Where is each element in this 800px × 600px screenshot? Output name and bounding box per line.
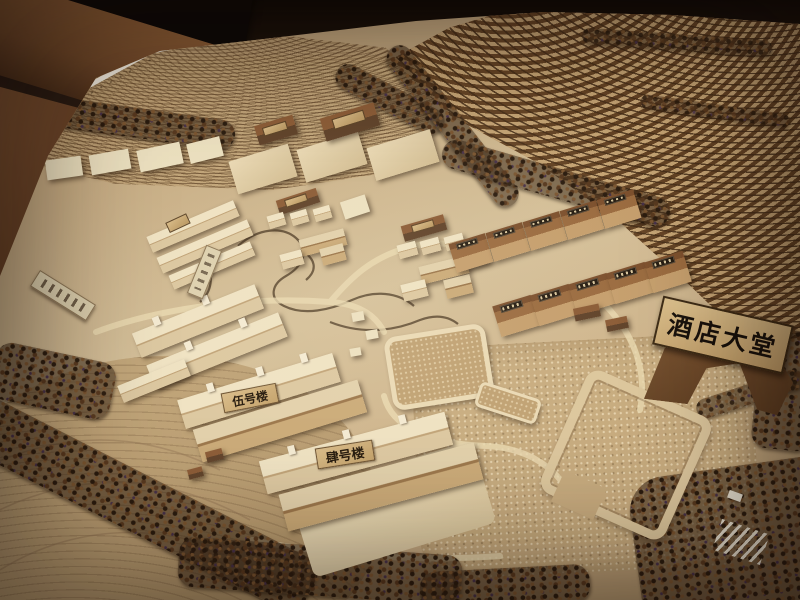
small-name-plaque — [332, 110, 367, 130]
village-house — [400, 279, 428, 302]
small-name-plaque — [410, 219, 435, 233]
small-name-plaque — [284, 193, 308, 208]
chimney — [183, 340, 193, 351]
roof-name-plaque — [492, 226, 515, 239]
village-house — [267, 212, 287, 229]
small-cottage — [351, 311, 364, 322]
cream-building — [45, 156, 83, 181]
village-house — [279, 249, 304, 269]
plaque-text-marks — [458, 240, 476, 248]
village-house — [313, 205, 333, 222]
chimney — [238, 317, 248, 328]
roof-name-plaque — [614, 266, 638, 280]
plaque-text-marks — [606, 196, 624, 204]
fallen-sign-plaque — [30, 270, 96, 321]
roof-name-plaque — [538, 288, 562, 302]
plaque-text-marks — [495, 229, 513, 237]
village-house — [290, 209, 310, 226]
architectural-model-photo: 伍号楼 肆号楼 — [0, 0, 800, 600]
plaque-text-marks — [40, 279, 86, 312]
townhouse — [644, 251, 692, 293]
chimney — [255, 366, 264, 377]
small-name-plaque — [262, 121, 289, 137]
chimney — [151, 315, 161, 326]
plaque-text-marks — [569, 207, 587, 215]
plaque-text-marks — [578, 280, 597, 288]
roof-name-plaque — [529, 215, 552, 228]
low-dark-block — [605, 316, 629, 332]
small-cottage — [349, 347, 361, 357]
village-house — [401, 214, 448, 242]
roof-name-plaque — [566, 204, 589, 217]
plaque-text-marks — [540, 291, 559, 299]
plaque-text-marks — [502, 302, 521, 310]
village-house — [397, 241, 419, 259]
roof-name-plaque — [500, 299, 524, 313]
plaque-text-marks — [532, 218, 550, 226]
roof-name-plaque — [652, 255, 676, 269]
chimney — [299, 353, 308, 364]
small-name-plaque — [165, 214, 190, 233]
chimney — [398, 414, 407, 425]
village-house — [340, 194, 370, 219]
model-base-terrain: 伍号楼 肆号楼 — [0, 0, 800, 600]
plaque-text-marks — [654, 258, 673, 266]
village-house — [420, 237, 442, 255]
roof-name-plaque — [576, 277, 600, 291]
small-cottage — [365, 329, 378, 340]
plaque-text-marks — [616, 269, 635, 277]
